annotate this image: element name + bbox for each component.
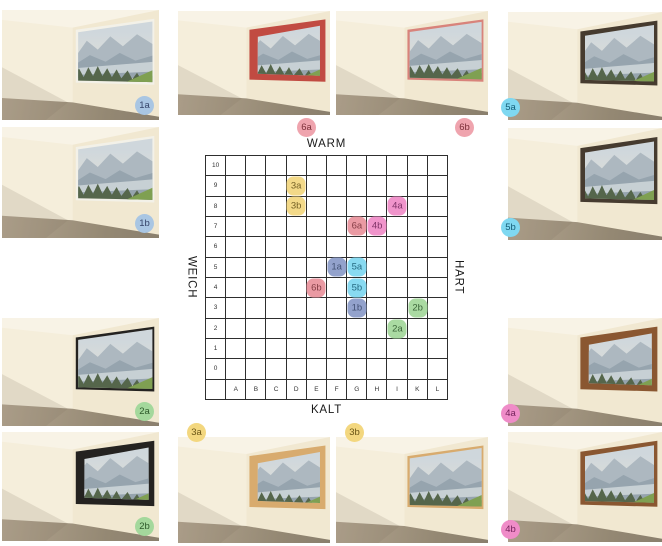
chart-point-3b: 3b xyxy=(287,197,306,216)
room-rendering-6a: 6a xyxy=(178,11,330,115)
room-badge-5b: 5b xyxy=(501,218,520,237)
room-badge-6a: 6a xyxy=(297,118,316,137)
room-badge-5a: 5a xyxy=(501,98,520,117)
chart-point-4b: 4b xyxy=(368,217,387,236)
chart-point-6a: 6a xyxy=(347,217,366,236)
room-badge-4a: 4a xyxy=(501,404,520,423)
room-badge-2b: 2b xyxy=(135,517,154,536)
chart-points-layer: 1a1b2a2b3a3b4a4b5a5b6a6b xyxy=(205,155,448,400)
room-rendering-6b: 6b xyxy=(336,11,488,115)
room-rendering-5b: 5b xyxy=(508,128,662,240)
chart-point-1b: 1b xyxy=(347,299,366,318)
chart-point-6b: 6b xyxy=(307,278,326,297)
chart-point-1a: 1a xyxy=(327,258,346,277)
room-badge-4b: 4b xyxy=(501,520,520,539)
room-badge-2a: 2a xyxy=(135,402,154,421)
chart-point-5a: 5a xyxy=(347,258,366,277)
room-rendering-1b: 1b xyxy=(2,127,159,238)
room-rendering-2b: 2b xyxy=(2,432,159,541)
chart-point-2a: 2a xyxy=(388,319,407,338)
axis-label-hart: HART xyxy=(451,155,466,400)
figure-canvas: WARM KALT WEICH HART 109876543210ABCDEFG… xyxy=(0,0,662,546)
room-rendering-2a: 2a xyxy=(2,318,159,426)
room-badge-3b: 3b xyxy=(345,423,364,442)
room-rendering-4a: 4a xyxy=(508,318,662,426)
axis-label-kalt: KALT xyxy=(205,404,448,416)
axis-label-weich: WEICH xyxy=(184,155,199,400)
axis-label-warm: WARM xyxy=(205,138,448,150)
room-badge-3a: 3a xyxy=(187,423,206,442)
room-badge-1b: 1b xyxy=(135,214,154,233)
chart-point-5b: 5b xyxy=(347,278,366,297)
room-badge-6b: 6b xyxy=(455,118,474,137)
chart-point-3a: 3a xyxy=(287,176,306,195)
room-rendering-1a: 1a xyxy=(2,10,159,120)
chart-point-2b: 2b xyxy=(408,299,427,318)
room-rendering-5a: 5a xyxy=(508,12,662,120)
room-rendering-3a: 3a xyxy=(178,437,330,543)
room-rendering-4b: 4b xyxy=(508,432,662,542)
room-rendering-3b: 3b xyxy=(336,437,488,543)
chart-point-4a: 4a xyxy=(388,197,407,216)
room-badge-1a: 1a xyxy=(135,96,154,115)
